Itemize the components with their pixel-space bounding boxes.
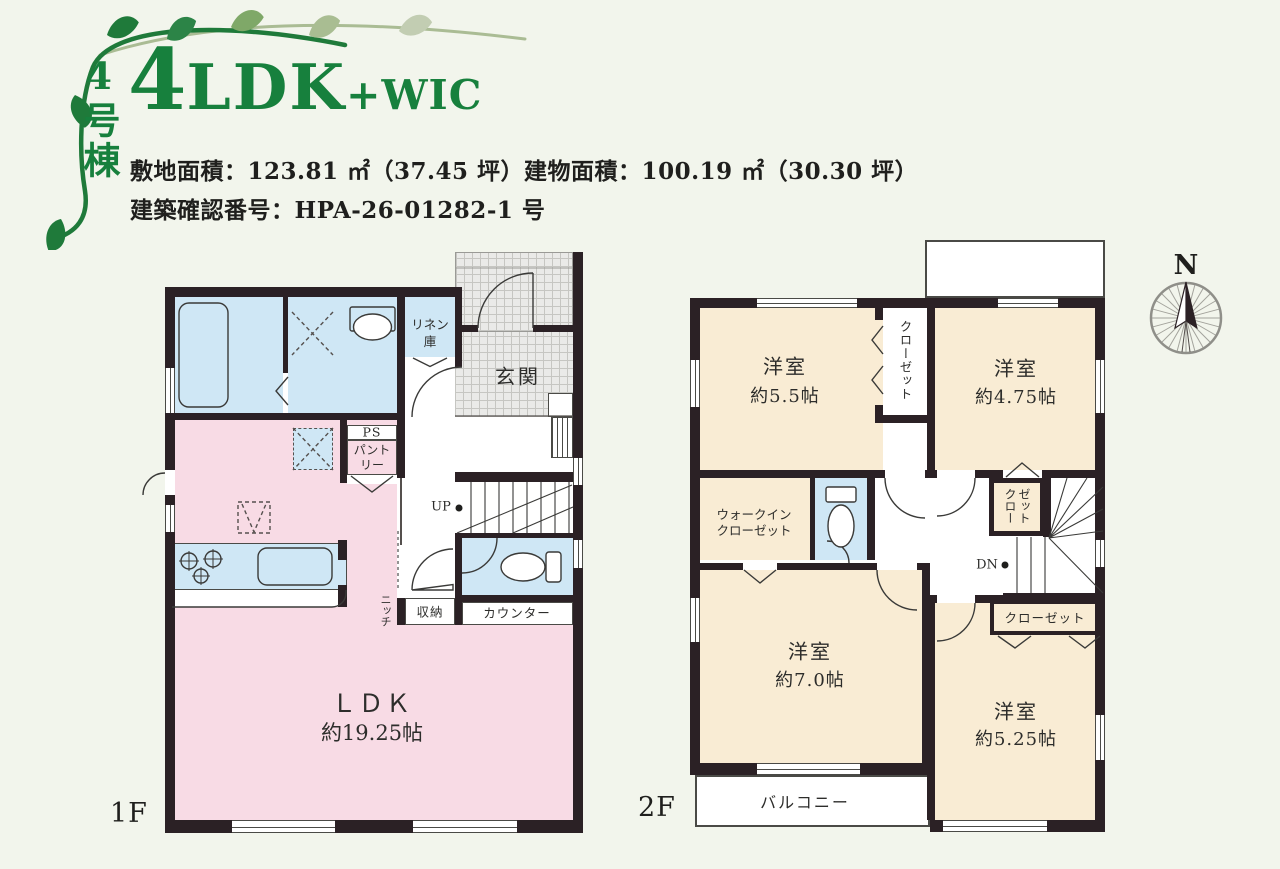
wall <box>455 538 462 595</box>
room-d-size: 約5.25帖 <box>975 725 1057 751</box>
leaf-icon <box>397 13 433 37</box>
room-washroom <box>288 297 397 413</box>
wall <box>165 413 397 420</box>
room-c-size: 約7.0帖 <box>775 666 845 692</box>
window <box>232 820 335 833</box>
hall-partition-line <box>400 478 402 545</box>
side-door-gap <box>165 470 175 495</box>
side-door-arc <box>143 473 165 495</box>
window <box>573 540 583 568</box>
compass-north-label: N <box>1146 250 1226 281</box>
balcony-upper <box>925 240 1105 298</box>
counter-label: カウンター <box>483 603 551 622</box>
wall <box>690 470 885 478</box>
wall <box>875 415 927 423</box>
closet-a-label: クローゼット <box>896 310 915 410</box>
floor1-plan: 玄関 リネン 庫 PS パント リー UP 収納 カウンター ニッチ ＬＤＫ 約… <box>135 245 590 837</box>
window <box>757 298 857 308</box>
room-c-label: 洋室 <box>788 636 832 665</box>
leaf-icon <box>39 216 72 250</box>
room-ldk-size: 約19.25帖 <box>321 717 423 747</box>
room-pantry-label: パント リー <box>354 443 391 473</box>
floor1-label: 1F <box>110 798 148 829</box>
room-linen-line1: リネン <box>411 316 449 333</box>
room-linen-label: リネン 庫 <box>411 316 449 350</box>
closet-b-label: クローゼット <box>1003 483 1031 529</box>
wall <box>1003 593 1105 603</box>
wall <box>455 297 462 367</box>
title-ldk: LDK <box>186 56 346 119</box>
unit-number: 4号棟 <box>72 54 126 204</box>
wall <box>397 598 405 625</box>
wall <box>283 297 288 373</box>
room-pantry-line1: パント <box>354 443 391 458</box>
room-a-label: 洋室 <box>763 351 807 380</box>
entry-step <box>548 393 573 417</box>
room-wic-label: ウォークイン クローゼット <box>716 507 791 539</box>
page-title: 4LDK+WIC <box>128 38 482 122</box>
stairs-up-label: UP <box>431 500 451 515</box>
pantry-door-gap <box>347 475 397 484</box>
floor2-plan: 洋室 約5.5帖 クローゼット 洋室 約4.75帖 ウォークイン クローゼット … <box>685 235 1115 835</box>
room-ldk-label: ＬＤＫ <box>331 684 412 720</box>
leaf-icon <box>305 12 343 41</box>
floor2-label: 2F <box>638 792 676 823</box>
window <box>413 820 517 833</box>
wall <box>338 585 347 607</box>
floorplan-page: 4号棟 4LDK+WIC 敷地面積：123.81 ㎡（37.45 坪）建物面積：… <box>0 0 1280 869</box>
wall <box>917 563 930 570</box>
kitchen-counter-edge <box>172 590 346 607</box>
wall <box>927 298 935 478</box>
pipe-space-label: PS <box>363 425 382 440</box>
wall <box>925 470 937 478</box>
title-number: 4 <box>128 38 186 122</box>
refrigerator-space <box>293 428 333 470</box>
wall <box>455 595 583 602</box>
wall <box>975 470 1003 478</box>
window <box>1095 360 1105 413</box>
compass-needle-tail <box>1186 321 1190 352</box>
title-suffix: +WIC <box>346 75 482 116</box>
compass-needle-tail <box>1182 321 1186 352</box>
wall <box>165 820 583 833</box>
wall <box>690 563 743 570</box>
room-wic-line1: ウォークイン <box>716 507 791 523</box>
wall <box>935 595 937 603</box>
window <box>690 598 700 642</box>
wall <box>397 297 405 478</box>
window <box>1095 540 1105 567</box>
wall <box>455 472 573 482</box>
balcony-label: バルコニー <box>760 789 850 813</box>
room-storage-label: 収納 <box>416 602 443 621</box>
window <box>943 820 1047 832</box>
window <box>165 505 175 532</box>
room-linen-line2: 庫 <box>411 333 449 350</box>
entry-porch <box>455 252 573 332</box>
room-pantry-line2: リー <box>354 458 391 473</box>
room-a-size: 約5.5帖 <box>750 382 820 408</box>
window <box>165 368 175 413</box>
area-spec-line: 敷地面積：123.81 ㎡（37.45 坪）建物面積：100.19 ㎡（30.3… <box>130 152 918 186</box>
wall <box>1043 478 1051 537</box>
compass-needle-white <box>1175 282 1186 328</box>
room-d-label: 洋室 <box>994 696 1038 725</box>
leaf-icon <box>229 8 266 33</box>
compass-ring <box>1151 283 1221 353</box>
room-toilet-1f <box>462 538 573 595</box>
room-bathroom <box>175 297 283 413</box>
kitchen-counter <box>172 543 347 590</box>
shoe-shelf <box>551 417 573 458</box>
window <box>690 360 700 407</box>
room-ldk-lower <box>397 622 573 820</box>
wall <box>777 563 877 570</box>
wall <box>922 570 930 763</box>
room-toilet-2f <box>815 478 867 560</box>
wall <box>533 325 573 332</box>
room-b-label: 洋室 <box>994 353 1038 382</box>
window <box>573 458 583 485</box>
wall <box>810 478 815 560</box>
wall <box>1042 470 1105 478</box>
stairs-dn-label: DN <box>976 558 998 573</box>
niche-label: ニッチ <box>377 588 393 632</box>
closet-c-label: クローゼット <box>1004 608 1085 627</box>
wall <box>867 478 875 560</box>
window <box>998 298 1058 308</box>
compass-needle-black <box>1186 282 1197 328</box>
building-confirmation-number: 建築確認番号：HPA-26-01282-1 号 <box>130 191 545 225</box>
compass: N <box>1146 250 1226 362</box>
wall <box>340 420 347 483</box>
wall <box>455 602 462 625</box>
window <box>757 763 860 775</box>
compass-spokes <box>1151 283 1221 353</box>
wall <box>875 308 883 320</box>
wall <box>338 540 347 560</box>
room-genkan-label: 玄関 <box>495 361 541 390</box>
window <box>1095 715 1105 760</box>
wall <box>975 595 1003 603</box>
room-wic-line2: クローゼット <box>716 523 791 539</box>
room-b-size: 約4.75帖 <box>975 383 1057 409</box>
wall <box>165 287 462 297</box>
wall <box>455 533 573 538</box>
